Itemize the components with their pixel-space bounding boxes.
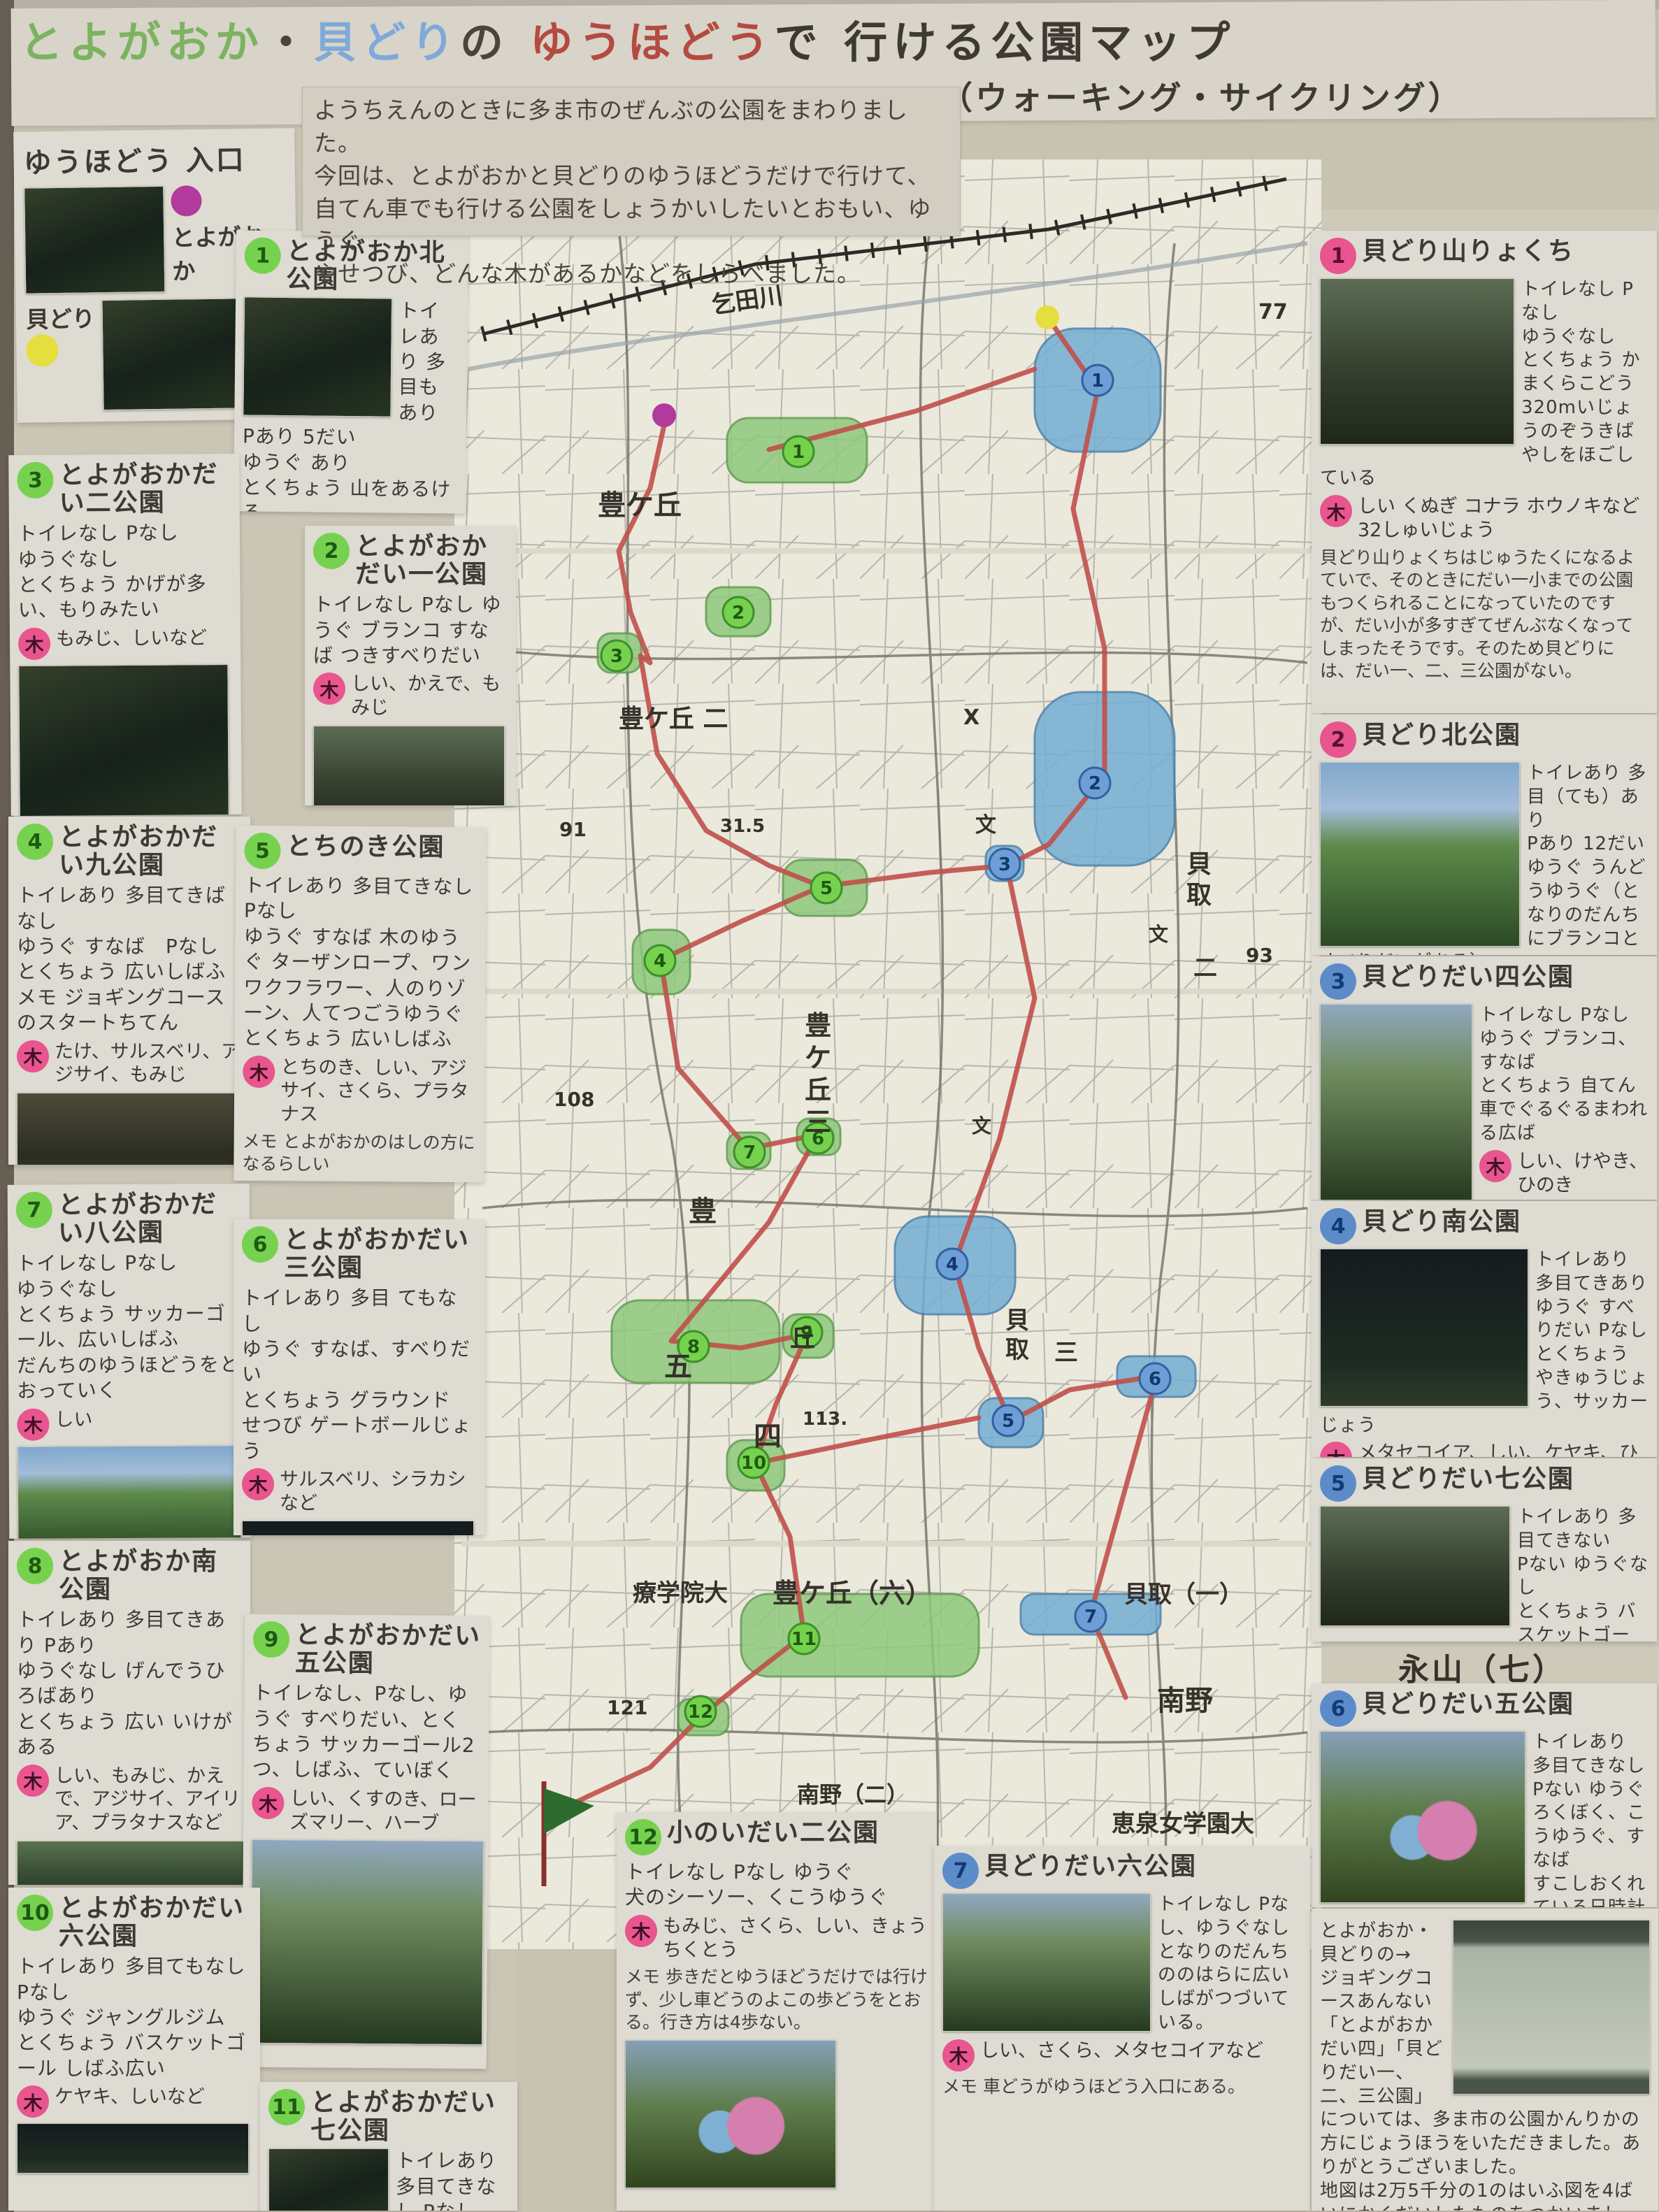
- photo: [243, 297, 392, 417]
- card-header: 4とよがおかだい九公園: [17, 824, 242, 879]
- map-label: 丘: [790, 1324, 815, 1353]
- map-label: 貝: [1005, 1307, 1029, 1335]
- card-number-badge: 2: [1320, 721, 1356, 758]
- map-label-nagayama: 永山（七）: [1398, 1644, 1566, 1689]
- map-label: ケ: [805, 1042, 831, 1073]
- photo: [1320, 278, 1514, 445]
- card-number-badge: 1: [244, 237, 281, 274]
- tree-badge: 木: [17, 1408, 49, 1440]
- card-body-line: だんちのゆうほどうをとおっていく: [17, 1352, 242, 1404]
- card-number-badge: 5: [244, 833, 280, 869]
- card-title: 貝どりだい四公園: [1362, 963, 1574, 991]
- route-marker-number: 7: [1084, 1607, 1097, 1628]
- photo: [625, 2040, 836, 2188]
- card-body-line: トイレあり 多目てきばなし: [17, 883, 242, 934]
- route-marker-number: 5: [1002, 1411, 1014, 1432]
- tree-species: しい くぬぎ コナラ ホウノキなど 32しゅいじょう: [1358, 495, 1649, 543]
- route-marker-number: 3: [998, 854, 1011, 875]
- note-card: 6とよがおかだい三公園トイレあり 多目 てもなしゆうぐ すなば、すべりだいとくち…: [234, 1219, 485, 1535]
- card-header: 7貝どりだい六公園: [942, 1853, 1302, 1889]
- tree-species: ケヤキ、しいなど: [55, 2085, 205, 2109]
- route-marker-number: 7: [743, 1142, 756, 1163]
- map-label: 豊: [805, 1010, 831, 1041]
- card-body-line: とくちょう 山をあるける: [242, 475, 458, 513]
- note-card: 12小のいだい二公園トイレなし Pなし ゆうぐ犬のシーソー、くこうゆうぐ木もみじ…: [617, 1812, 937, 2211]
- note-card: 5とちのき公園トイレあり 多目てきなし Pなしゆうぐ すなば 木のゆうぐ ターザ…: [234, 826, 487, 1182]
- card-header: 3とよがおかだい二公園: [17, 461, 231, 517]
- photo: [1320, 1249, 1528, 1407]
- poster-title: とよがおか・貝どりの ゆうほどうで 行ける公園マップ: [20, 7, 1235, 70]
- entrance-dot: [652, 403, 676, 427]
- card-header: 8とよがおか南公園: [17, 1548, 242, 1603]
- tree-line: 木サルスベリ、シラカシなど: [242, 1468, 477, 1516]
- card-body-line: とくちょう グラウンド: [242, 1388, 477, 1413]
- card-body: トイレあり 多目てきないPない ゆうぐなしとくちょう バスケットゴール グラウン…: [1320, 1506, 1649, 1642]
- map-label: 取: [1005, 1336, 1029, 1364]
- tree-badge: 木: [942, 2039, 975, 2071]
- card-number-badge: 5: [1320, 1465, 1356, 1502]
- card-body-line: メモ ジョギングコースのスタートちてん: [17, 985, 242, 1036]
- note-card: 3貝どりだい四公園トイレなし Pなしゆうぐ ブランコ、すなばとくちょう 自てん車…: [1312, 956, 1657, 1200]
- card-body-line: とくちょう サッカーゴール、広いしばふ: [17, 1301, 242, 1353]
- card-number-badge: 10: [17, 1895, 53, 1931]
- tree-line: 木しい、さくら、メタセコイアなど: [942, 2039, 1302, 2071]
- card-body-line: 犬のシーソー、くこうゆうぐ: [625, 1885, 928, 1910]
- note-card: 9とよがおかだい五公園トイレなし、Pなし、ゆうぐ すべりだい、とくちょう サッカ…: [242, 1614, 490, 2069]
- card-number-badge: 9: [253, 1621, 289, 1658]
- poster-subtitle: （ウォーキング・サイクリング）: [940, 73, 1463, 119]
- card-header: 4貝どり南公園: [1320, 1208, 1649, 1244]
- note-card: 2貝どり北公園トイレあり 多目（ても）ありPあり 12だいゆうぐ うんどうゆうぐ…: [1312, 714, 1657, 955]
- card-body: トイレあり 多目てきありゆうぐ すべりだい Pなしとくちょう やきゅうじょう、サ…: [1320, 1249, 1649, 1437]
- memo-line: メモ 車どうがゆうほどう入口にある。: [942, 2076, 1302, 2099]
- card-body: トイレなし Pなしゆうぐなしとくちょう かまくらこどう 320mいじょうのぞうき…: [1320, 278, 1649, 491]
- photo: [242, 1521, 474, 1535]
- card-title: とよがおかだい三公園: [284, 1226, 477, 1281]
- tree-badge: 木: [17, 1765, 49, 1797]
- card-title: 貝どりだい五公園: [1362, 1690, 1574, 1718]
- tree-species: もみじ、しいなど: [56, 626, 207, 651]
- card-body-line: トイレなし Pなし ゆうぐ ブランコ すなば つきすべりだい: [313, 592, 508, 668]
- card-number-badge: 4: [17, 824, 53, 860]
- map-label: 南野（二）: [797, 1781, 909, 1808]
- card-body-line: 地図は2万5千分の1のはいふ図を4ばいにかくだいしたものをつかいました。: [1320, 2180, 1650, 2211]
- tree-line: 木もみじ、しいなど: [18, 626, 232, 660]
- card-number-badge: 1: [1320, 238, 1356, 274]
- tree-badge: 木: [1320, 1442, 1352, 1457]
- card-body: トイレなし Pなし ゆうぐ犬のシーソー、くこうゆうぐ: [625, 1860, 928, 1911]
- memo-line: メモ 歩きだとゆうほどうだけでは行けず、少し車どうのよこの歩どうをとおる。行き方…: [625, 1966, 928, 2034]
- route-marker-number: 5: [820, 878, 833, 899]
- card-number-badge: 12: [625, 1819, 661, 1855]
- entrance-label-kaidori: 貝どり: [25, 300, 95, 334]
- card-header: 12小のいだい二公園: [625, 1819, 928, 1855]
- note-card: 2とよがおかだい一公園トイレなし Pなし ゆうぐ ブランコ すなば つきすべりだ…: [305, 526, 516, 805]
- card-number-badge: 7: [16, 1192, 52, 1228]
- card-header: 6貝どりだい五公園: [1320, 1690, 1649, 1727]
- card-number-badge: 2: [313, 533, 350, 569]
- note-card: 6貝どりだい五公園トイレあり 多目てきなしPない ゆうぐ ろくぼく、こうゆうぐ、…: [1312, 1683, 1657, 1907]
- kaidori-route-dot: [26, 334, 59, 367]
- tree-species: しい、もみじ、かえで、アジサイ、アイリア、プラタナスなど: [55, 1765, 242, 1835]
- card-title: とよがおか南公園: [59, 1548, 242, 1603]
- route-marker-number: 10: [741, 1453, 766, 1474]
- card-body: トイレなし Pなしゆうぐ ブランコ、すなばとくちょう 自てん車でぐるぐるまわれる…: [1320, 1004, 1649, 1146]
- tree-badge: 木: [17, 2085, 49, 2118]
- photo: [942, 1893, 1151, 2032]
- card-header: 11とよがおかだい七公園: [268, 2089, 509, 2144]
- title-segment: ・: [264, 17, 313, 68]
- card-body-line: トイレなし、Pなし、ゆうぐ すべりだい、とくちょう サッカーゴール2つ、しばふ、…: [252, 1681, 481, 1784]
- card-title: 貝どり山りょくち: [1362, 238, 1574, 266]
- card-body-line: トイレあり 多目てきなし Pなし: [244, 873, 477, 926]
- note-card: 1貝どり山りょくちトイレなし Pなしゆうぐなしとくちょう かまくらこどう 320…: [1312, 231, 1657, 713]
- map-label: 豊ケ丘（六）: [773, 1578, 932, 1609]
- map-svg: 1235467891011121234567 乞田川77豊ケ丘豊ケ丘 二9131…: [440, 159, 1335, 1977]
- toyogaoka-route-dot: [171, 185, 203, 217]
- tree-species: しい: [55, 1408, 92, 1432]
- card-body: とよがおか・貝どりの→ジョギングコースあんない「とよがおかだい四」「貝どりだい一…: [1320, 1920, 1650, 2211]
- card-header: 5とちのき公園: [244, 833, 477, 870]
- card-body-line: とくちょう かげが多い、もりみたい: [17, 571, 232, 624]
- map-label: 121: [607, 1696, 647, 1719]
- card-body-line: ゆうぐ すなば、すべりだい: [242, 1337, 477, 1388]
- photo: [18, 664, 229, 816]
- map-label: 五: [664, 1351, 692, 1383]
- map-label: 南野: [1157, 1685, 1213, 1717]
- note-card: 11とよがおかだい七公園トイレあり 多目てきなし Pなしゆうぐ むかしながらのゆ…: [260, 2082, 517, 2211]
- card-body: トイレあり 多目てきなし Pなしゆうぐ むかしながらのゆうぐ、とくちょう 広くて…: [268, 2148, 509, 2211]
- note-card: とよがおか・貝どりの→ジョギングコースあんない「とよがおかだい四」「貝どりだい一…: [1312, 1909, 1658, 2211]
- tree-badge: 木: [1479, 1150, 1511, 1182]
- tree-badge: 木: [252, 1787, 284, 1819]
- tree-badge: 木: [1320, 495, 1352, 527]
- route-marker-number: 6: [1149, 1369, 1161, 1390]
- note-card: 4貝どり南公園トイレあり 多目てきありゆうぐ すべりだい Pなしとくちょう やき…: [1312, 1201, 1657, 1457]
- photo: [1320, 762, 1520, 947]
- card-number-badge: 3: [17, 462, 53, 498]
- entrance-dot: [1035, 306, 1059, 329]
- map-label: 108: [554, 1088, 594, 1111]
- card-header: 7とよがおかだい八公園: [16, 1191, 241, 1247]
- card-number-badge: 6: [1320, 1690, 1356, 1727]
- tree-species: しい、かえで、もみじ: [351, 673, 508, 720]
- card-body: トイレなし Pなしゆうぐなしとくちょう かげが多い、もりみたい: [17, 520, 232, 624]
- intro-line: 今回は、とよがおかと貝どりのゆうほどうだけで行けて、: [314, 160, 949, 193]
- photo: [24, 186, 165, 294]
- card-number-badge: 7: [942, 1853, 979, 1889]
- tree-line: 木たけ、サルスベリ、アジサイ、もみじ: [17, 1040, 242, 1088]
- map-label: 31.5: [720, 816, 765, 837]
- photo: [17, 1841, 249, 1885]
- photo: [313, 726, 505, 805]
- card-body: トイレあり 多目もありPあり 5だいゆうぐ ありとくちょう 山をあるけるくちれて…: [241, 297, 459, 514]
- card-body: トイレあり 多目てきなし Pなしゆうぐ すなば 木のゆうぐ ターザンロープ、ワン…: [243, 873, 478, 1053]
- route-marker-number: 4: [946, 1254, 958, 1275]
- note-card: 8とよがおか南公園トイレあり 多目てきあり Pありゆうぐなし げんでうひろばあり…: [8, 1541, 250, 1885]
- card-body: トイレあり 多目てきあり Pありゆうぐなし げんでうひろばありとくちょう 広い …: [17, 1607, 242, 1760]
- map-label: 貝取（一）: [1124, 1581, 1243, 1609]
- tree-line: 木とちのき、しい、アジサイ、さくら、プラタナス: [243, 1056, 477, 1128]
- tree-species: しい、さくら、メタセコイアなど: [980, 2039, 1263, 2063]
- tree-species: しい、くすのき、ローズマリー、ハーブ: [289, 1787, 480, 1835]
- card-body-line: トイレあり 多目てきあり Pあり: [17, 1607, 242, 1658]
- card-body-line: とくちょう 広い いけがある: [17, 1709, 242, 1760]
- tree-species: サルスベリ、シラカシなど: [280, 1468, 477, 1516]
- card-number-badge: 6: [242, 1226, 278, 1263]
- card-body: トイレなし、Pなし、ゆうぐ すべりだい、とくちょう サッカーゴール2つ、しばふ、…: [252, 1681, 481, 1784]
- map-label: 三: [805, 1107, 831, 1137]
- map-label: 貝: [1186, 850, 1212, 879]
- tree-line: 木ケヤキ、しいなど: [17, 2085, 252, 2118]
- card-title: とよがおかだい二公園: [59, 461, 231, 517]
- map-label: 豊ケ丘 二: [619, 705, 728, 733]
- title-segment: 貝どり: [313, 17, 460, 68]
- tree-badge: 木: [243, 1056, 275, 1088]
- poster: とよがおか・貝どりの ゆうほどうで 行ける公園マップ （ウォーキング・サイクリン…: [0, 0, 1659, 2212]
- route-marker-number: 4: [654, 951, 666, 972]
- card-header: 2貝どり北公園: [1320, 721, 1649, 758]
- photo: [17, 1445, 242, 1539]
- card-body: トイレあり 多目てきなしPない ゆうぐ ろくぼく、こうゆうぐ、すなばすこしおくれ…: [1320, 1731, 1649, 1907]
- note-card: 4とよがおかだい九公園トイレあり 多目てきばなしゆうぐ すなば Pなしとくちょう…: [8, 817, 250, 1165]
- map-label: 77: [1258, 300, 1288, 324]
- card-body-line: ゆうぐ すなば Pなし: [17, 934, 242, 959]
- photo: [101, 298, 241, 410]
- card-body-line: ゆうぐ あり: [242, 450, 457, 477]
- title-segment: の: [460, 17, 530, 68]
- card-body-line: ゆうぐ すなば 木のゆうぐ ターザンロープ、ワンワクフラワー、人のりゾーン、人て…: [243, 924, 477, 1028]
- tree-badge: 木: [625, 1915, 657, 1947]
- card-title: 貝どり南公園: [1362, 1208, 1521, 1236]
- map-label: 取: [1186, 881, 1212, 910]
- card-title: とよがおかだい七公園: [310, 2089, 509, 2144]
- tree-line: 木しい くぬぎ コナラ ホウノキなど 32しゅいじょう: [1320, 495, 1649, 543]
- card-title: 貝どりだい六公園: [984, 1853, 1197, 1881]
- photo: [250, 1839, 484, 2045]
- photo: [1320, 1731, 1525, 1903]
- map-label: 二: [1193, 954, 1217, 982]
- card-body-line: トイレあり 多目 てもなし: [242, 1286, 477, 1337]
- tree-species: しい、けやき、ひのき: [1517, 1150, 1649, 1198]
- photo: [1320, 1004, 1472, 1200]
- card-body-line: ゆうぐ ジャングルジム: [17, 2005, 252, 2030]
- card-title: とよがおかだい六公園: [59, 1895, 252, 1950]
- map-label: 文: [972, 1114, 991, 1137]
- card-number-badge: 3: [1320, 963, 1356, 1000]
- memo-line: 貝どり山りょくちはじゅうたくになるよていで、そのときにだい一小までの公園もつくら…: [1320, 547, 1649, 683]
- card-title: 小のいだい二公園: [667, 1819, 879, 1847]
- card-body-line: ゆうぐなし: [17, 546, 231, 573]
- tree-species: たけ、サルスベリ、アジサイ、もみじ: [55, 1040, 242, 1088]
- card-number-badge: 4: [1320, 1208, 1356, 1244]
- card-header: 2とよがおかだい一公園: [313, 533, 508, 588]
- note-card: 7とよがおかだい八公園トイレなし Pなしゆうぐなしとくちょう サッカーゴール、広…: [8, 1184, 252, 1539]
- entrance-title: ゆうほどう 入口: [23, 136, 285, 180]
- photo: [1320, 1506, 1510, 1626]
- card-title: とよがおかだい九公園: [59, 824, 242, 879]
- card-body: トイレなし Pなし ゆうぐ ブランコ すなば つきすべりだい: [313, 592, 508, 668]
- tree-line: 木しい、かえで、もみじ: [313, 673, 508, 720]
- card-title: 貝どりだい七公園: [1362, 1465, 1574, 1493]
- card-body: トイレあり 多目（ても）ありPあり 12だいゆうぐ うんどうゆうぐ（となりのだん…: [1320, 762, 1649, 955]
- map-paper: [454, 159, 1321, 1949]
- tree-line: 木しい、もみじ、かえで、アジサイ、アイリア、プラタナスなど: [17, 1765, 242, 1835]
- card-header: 9とよがおかだい五公園: [253, 1621, 482, 1678]
- tree-line: 木もみじ、さくら、しい、きょうちくとう: [625, 1915, 928, 1962]
- card-body-line: とくちょう 広いしばふ: [17, 959, 242, 984]
- card-body: トイレなし Pなし、ゆうぐなしとなりのだんちののはらに広いしばがつづいている。: [942, 1893, 1302, 2035]
- tree-line: 木しい、けやき、ひのき: [1479, 1150, 1649, 1198]
- photo: [1453, 1920, 1650, 2095]
- tree-badge: 木: [242, 1468, 274, 1500]
- tree-species: もみじ、さくら、しい、きょうちくとう: [663, 1915, 928, 1962]
- map-label: 豊ケ丘: [598, 489, 682, 522]
- map-label: 91: [559, 818, 587, 841]
- memo-line: メモ とよがおかのはしの方になるらしい: [242, 1130, 475, 1177]
- walking-map: 1235467891011121234567 乞田川77豊ケ丘豊ケ丘 二9131…: [440, 159, 1335, 1977]
- card-body-line: トイレなし Pなし: [16, 1250, 241, 1277]
- route-marker-number: 11: [791, 1629, 817, 1650]
- photo: [17, 1093, 238, 1165]
- route-marker-number: 1: [1091, 371, 1104, 392]
- card-number-badge: 8: [17, 1548, 53, 1584]
- card-body: トイレあり 多目てきばなしゆうぐ すなば Pなしとくちょう 広いしばふメモ ジョ…: [17, 883, 242, 1035]
- card-body: トイレあり 多目 てもなしゆうぐ すなば、すべりだいとくちょう グラウンドせつび…: [242, 1286, 477, 1464]
- card-body-line: とくちょう バスケットゴール しばふ広い: [17, 2030, 252, 2081]
- route-marker-number: 2: [1089, 773, 1101, 794]
- map-label: 113.: [803, 1409, 847, 1430]
- note-card: 10とよがおかだい六公園トイレあり 多目てもなし Pなしゆうぐ ジャングルジムと…: [8, 1888, 260, 2211]
- route-marker-number: 2: [732, 603, 745, 624]
- card-body-line: トイレあり 多目てもなし Pなし: [17, 1954, 252, 2005]
- card-title: とよがおかだい五公園: [295, 1621, 482, 1678]
- photo: [17, 2123, 249, 2174]
- map-label: 丘: [805, 1075, 831, 1105]
- card-body-line: Pあり 5だい: [243, 424, 458, 452]
- title-segment: とよがおか: [20, 17, 264, 68]
- note-card: 5貝どりだい七公園トイレあり 多目てきないPない ゆうぐなしとくちょう バスケッ…: [1312, 1458, 1657, 1642]
- tree-badge: 木: [18, 627, 50, 659]
- title-segment: で 行ける公園マップ: [775, 17, 1236, 68]
- card-header: 3貝どりだい四公園: [1320, 963, 1649, 1000]
- card-title: とよがおかだい一公園: [355, 533, 508, 588]
- card-body-line: トイレなし Pなし: [17, 520, 231, 547]
- map-label: 療学院大: [633, 1579, 728, 1607]
- card-body: トイレあり 多目てもなし Pなしゆうぐ ジャングルジムとくちょう バスケットゴー…: [17, 1954, 252, 2081]
- card-body-line: とくちょう 広いしばふ: [243, 1026, 477, 1053]
- note-card: 7貝どりだい六公園トイレなし Pなし、ゆうぐなしとなりのだんちののはらに広いしば…: [934, 1846, 1310, 2211]
- card-body-line: せつび ゲートボールじょう: [242, 1413, 477, 1464]
- tree-species: メタセコイア、しい、ケヤキ、ひのき など: [1358, 1442, 1649, 1457]
- card-body-line: ゆうぐなし: [16, 1276, 241, 1302]
- map-label: 文: [1149, 923, 1168, 946]
- intro-text: ようちえんのときに多ま市のぜんぶの公園をまわりました。今回は、とよがおかと貝どり…: [314, 94, 949, 291]
- tree-line: 木しい: [17, 1407, 242, 1441]
- map-label: 四: [754, 1421, 782, 1453]
- card-title: とよがおかだい八公園: [58, 1191, 241, 1247]
- card-header: 10とよがおかだい六公園: [17, 1895, 252, 1950]
- card-title: とちのき公園: [286, 833, 445, 861]
- intro-line: やせつび、どんな木があるかなどをしらべました。: [314, 258, 949, 291]
- map-label: 三: [1054, 1339, 1078, 1367]
- intro-line: 自てん車でも行ける公園をしょうかいしたいとおもい、ゆうぐ: [314, 193, 949, 259]
- map-label: X: [963, 705, 979, 730]
- card-body-line: ゆうぐなし げんでうひろばあり: [17, 1658, 242, 1709]
- intro-card: ようちえんのときに多ま市のぜんぶの公園をまわりました。今回は、とよがおかと貝どり…: [302, 87, 961, 236]
- note-card: 3とよがおかだい二公園トイレなし Pなしゆうぐなしとくちょう かげが多い、もりみ…: [8, 454, 242, 816]
- map-label: 93: [1246, 944, 1273, 967]
- tree-badge: 木: [313, 673, 345, 705]
- card-title: 貝どり北公園: [1362, 721, 1521, 749]
- card-header: 5貝どりだい七公園: [1320, 1465, 1649, 1502]
- card-header: 6とよがおかだい三公園: [242, 1226, 477, 1281]
- tree-line: 木しい、くすのき、ローズマリー、ハーブ: [252, 1787, 480, 1836]
- intro-line: ようちえんのときに多ま市のぜんぶの公園をまわりました。: [314, 94, 949, 160]
- tree-badge: 木: [17, 1040, 49, 1072]
- route-marker-number: 3: [610, 646, 623, 667]
- route-marker-number: 1: [792, 442, 805, 463]
- card-header: 1貝どり山りょくち: [1320, 238, 1649, 274]
- title-segment: ゆうほどう: [530, 17, 775, 68]
- map-label: 恵泉女学園大: [1112, 1810, 1254, 1838]
- card-number-badge: 11: [268, 2089, 305, 2125]
- card-body: トイレなし Pなしゆうぐなしとくちょう サッカーゴール、広いしばふだんちのゆうほ…: [16, 1250, 242, 1404]
- tree-species: とちのき、しい、アジサイ、さくら、プラタナス: [280, 1056, 477, 1128]
- tree-line: 木メタセコイア、しい、ケヤキ、ひのき など: [1320, 1442, 1649, 1457]
- map-label: 豊: [689, 1195, 717, 1228]
- map-label: 文: [975, 813, 996, 838]
- route-marker-number: 12: [688, 1702, 713, 1723]
- card-body-line: トイレなし Pなし ゆうぐ: [625, 1860, 928, 1885]
- photo: [268, 2148, 389, 2211]
